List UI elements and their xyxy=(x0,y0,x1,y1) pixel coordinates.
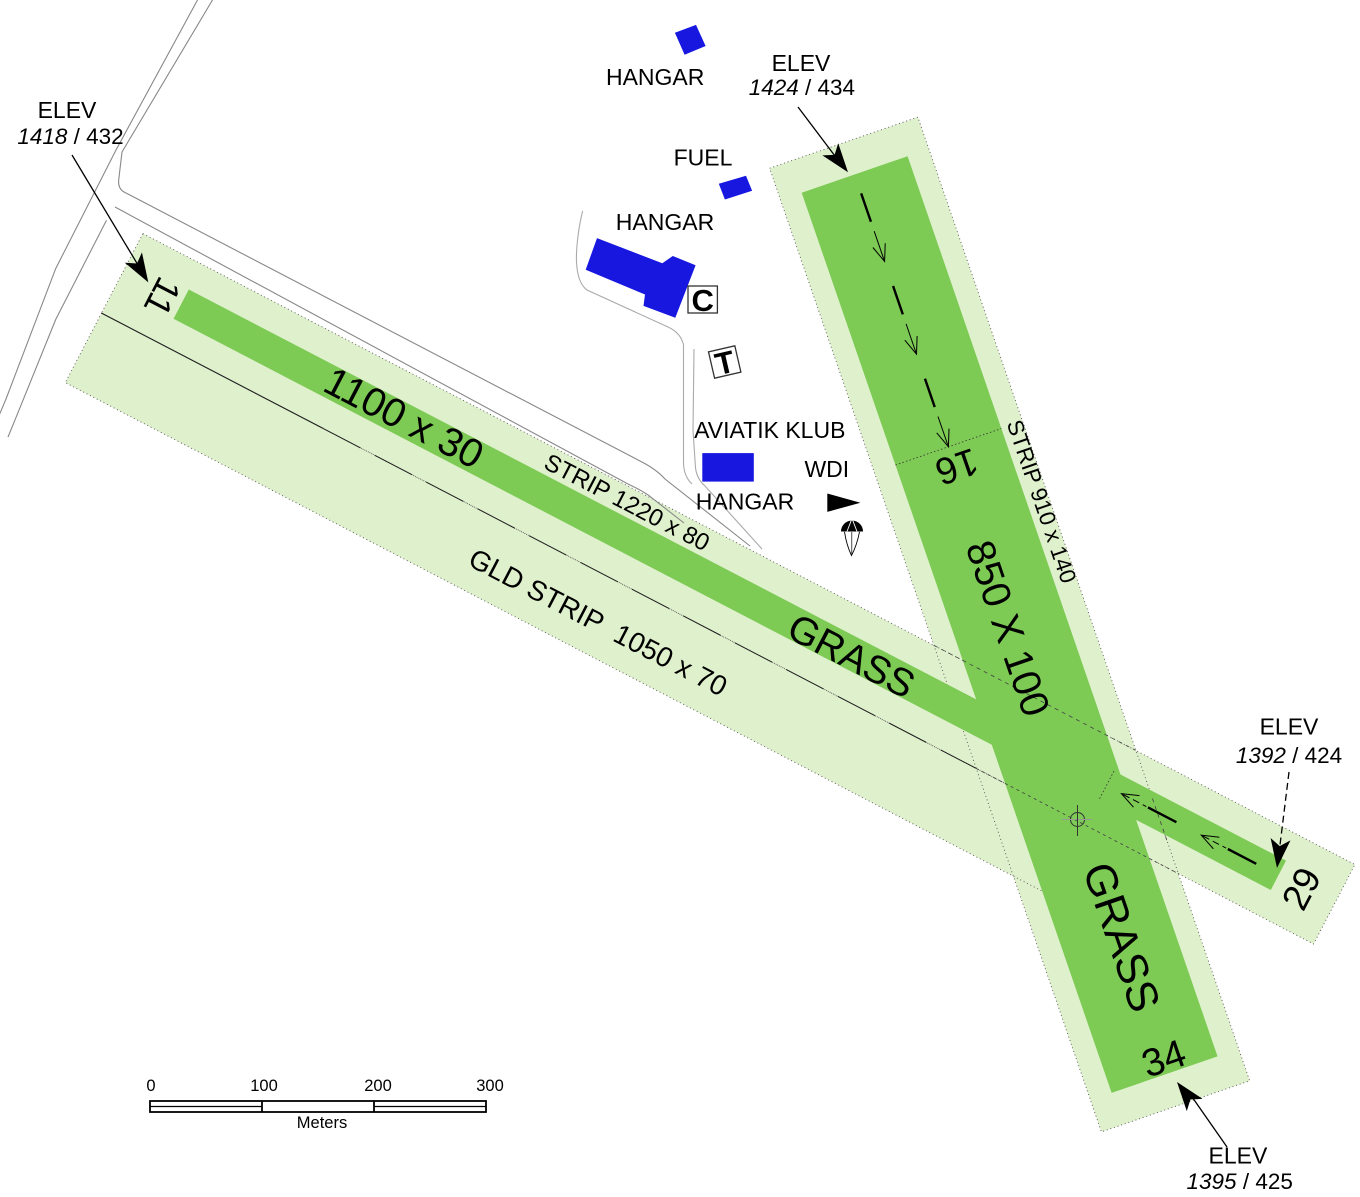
svg-text:AVIATIK KLUB: AVIATIK KLUB xyxy=(694,417,845,443)
svg-text:FUEL: FUEL xyxy=(674,144,733,170)
svg-text:HANGAR: HANGAR xyxy=(616,209,714,235)
svg-text:C: C xyxy=(692,283,714,318)
svg-text:ELEV: ELEV xyxy=(1260,714,1319,740)
svg-text:ELEV: ELEV xyxy=(772,50,831,76)
svg-text:Meters: Meters xyxy=(297,1114,347,1132)
svg-text:ELEV: ELEV xyxy=(38,97,97,123)
svg-text:200: 200 xyxy=(364,1077,392,1095)
svg-text:WDI: WDI xyxy=(804,456,849,482)
svg-text:100: 100 xyxy=(250,1077,278,1095)
svg-text:0: 0 xyxy=(146,1077,155,1095)
svg-text:300: 300 xyxy=(476,1077,504,1095)
svg-text:1424 / 434: 1424 / 434 xyxy=(749,75,855,100)
svg-text:ELEV: ELEV xyxy=(1208,1142,1267,1168)
svg-text:1395 / 425: 1395 / 425 xyxy=(1187,1169,1293,1194)
svg-text:HANGAR: HANGAR xyxy=(696,488,794,514)
svg-text:1392 / 424: 1392 / 424 xyxy=(1236,743,1342,768)
svg-text:HANGAR: HANGAR xyxy=(606,64,704,90)
svg-text:1418 / 432: 1418 / 432 xyxy=(17,124,123,149)
